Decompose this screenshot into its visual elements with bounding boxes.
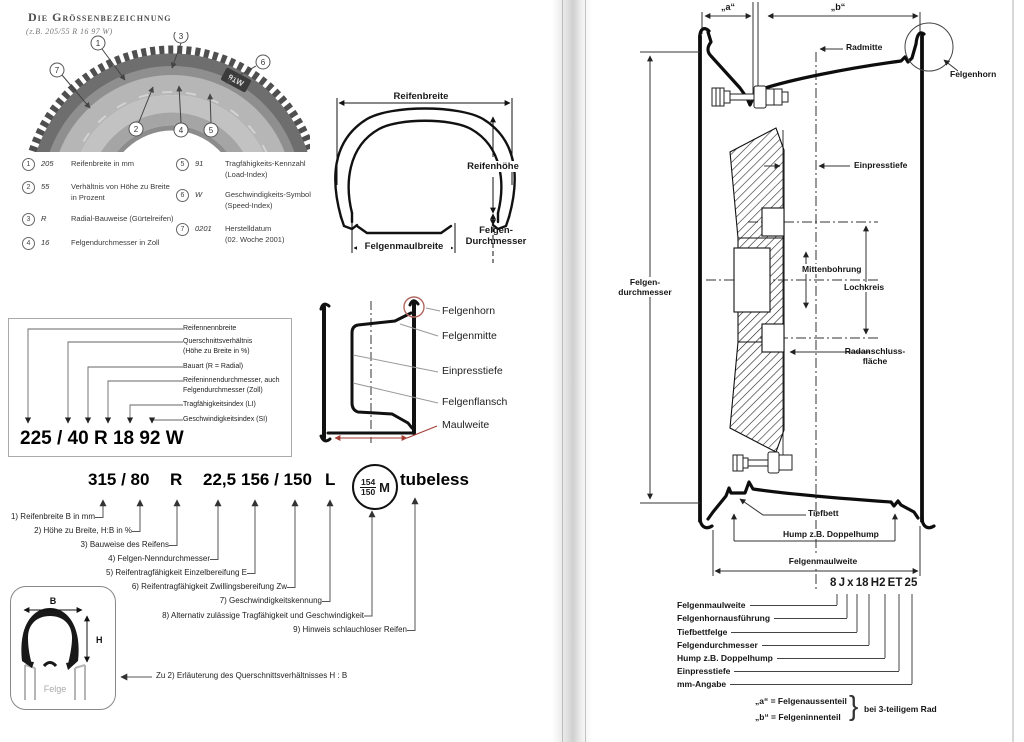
designation-label-4b: Felgendurchmesser (Zoll) (183, 386, 263, 396)
right-page: „a“ „b“ Radmitte Felgenhorn Einpresstief… (588, 0, 1024, 742)
truck-note-2: 2) Höhe zu Breite, H:B in % (0, 526, 132, 535)
truck-note-3: 3) Bauweise des Reifens (0, 540, 169, 549)
label-felgenmaulbreite: Felgenmaulbreite (357, 241, 451, 252)
legend-value: R (35, 213, 63, 224)
callout-1: 1 (96, 39, 101, 48)
legend-value: W (189, 189, 217, 200)
legend-desc: Verhältnis von Höhe zu Breitein Prozent (63, 181, 170, 203)
rim-code-label-row: Felgenmaulweite (677, 600, 837, 610)
page-title: Die Grössenbezeichnung (28, 10, 171, 25)
leader-line (750, 605, 838, 606)
designation-label-1: Reifennennbreite (183, 324, 236, 334)
label-felgenhorn-right: Felgenhorn (950, 69, 996, 79)
legend-num: 5 (176, 158, 189, 171)
footnote-3-part-wheel: bei 3-teiligem Rad (864, 704, 937, 714)
dimension-lines (640, 16, 958, 576)
rim-code: 8 J x 18 H2 ET 25 (830, 577, 917, 589)
designation-label-2a: Querschnittsverhältnis (183, 337, 252, 347)
book-spread: Die Grössenbezeichnung (z.B. 205/55 R 16… (0, 0, 1024, 742)
label-hump: Hump z.B. Doppelhump (781, 529, 881, 539)
label-felgenmitte: Felgenmitte (442, 330, 497, 342)
legend-item-7: 7 0201 Herstelldatum(02. Woche 2001) (176, 223, 284, 245)
legend-value: 0201 (189, 223, 217, 234)
leader-line (777, 658, 885, 659)
legend-num: 4 (22, 237, 35, 250)
callout-4: 4 (179, 126, 184, 135)
dim-b-label: „b“ (826, 2, 850, 12)
label-felgendurchmesser: Felgen-Durchmesser (455, 225, 537, 247)
label-einpresstiefe: Einpresstiefe (442, 365, 503, 377)
legend-desc: Herstelldatum(02. Woche 2001) (217, 223, 284, 245)
legend-num: 2 (22, 181, 35, 194)
hb-diagram: B H Felge (10, 586, 114, 708)
footnote-a: „a“ = Felgenaussenteil (755, 696, 847, 706)
rim-code-label-row: Felgendurchmesser (677, 640, 869, 650)
legend-num: 3 (22, 213, 35, 226)
label-radmitte: Radmitte (846, 42, 882, 52)
legend-desc: Tragfähigkeits-Kennzahl(Load-Index) (217, 158, 306, 180)
label-lochkreis: Lochkreis (842, 282, 886, 292)
leader-line (774, 618, 847, 619)
wheel-disc (730, 128, 784, 452)
label-felgendurchmesser-right: Felgen-durchmesser (608, 277, 682, 297)
rim-code-label-row: Einpresstiefe (677, 666, 899, 676)
truck-note-1: 1) Reifenbreite B in mm (0, 512, 95, 521)
dim-a-label: „a“ (716, 2, 740, 12)
rim-code-label-row: mm-Angabe (677, 679, 912, 689)
legend-item-6: 6 W Geschwindigkeits-Symbol(Speed-Index) (176, 189, 311, 211)
callout-6: 6 (261, 58, 266, 67)
legend-value: 16 (35, 237, 63, 248)
truck-note-5: 5) Reifentragfähigkeit Einzelbereifung E (0, 568, 247, 577)
legend-value: 91 (189, 158, 217, 169)
label-reifenhoehe: Reifenhöhe (465, 161, 521, 172)
legend-num: 6 (176, 189, 189, 202)
truck-note-4: 4) Felgen-Nenndurchmesser (0, 554, 210, 563)
designation-label-4a: Reifeninnendurchmesser, auch (183, 376, 280, 386)
rim-code-label-row: Tiefbettfelge (677, 627, 857, 637)
legend-item-2: 2 55 Verhältnis von Höhe zu Breitein Pro… (22, 181, 170, 203)
rim-outline (321, 301, 418, 441)
label-felge: Felge (44, 684, 67, 694)
designation-label-2b: (Höhe zu Breite in %) (183, 347, 250, 357)
legend-desc: Reifenbreite in mm (63, 158, 134, 169)
label-mittenbohrung: Mittenbohrung (800, 264, 863, 274)
felge-rim-lines (25, 665, 85, 700)
leader-line (730, 684, 912, 685)
zu2-footnote: Zu 2) Erläuterung des Querschnittsverhäl… (156, 671, 347, 680)
legend-item-4: 4 16 Felgendurchmesser in Zoll (22, 237, 159, 250)
designation-label-5: Tragfähigkeitsindex (LI) (183, 400, 256, 410)
callout-7: 7 (55, 66, 60, 75)
legend-num: 1 (22, 158, 35, 171)
legend-desc: Radial-Bauweise (Gürtelreifen) (63, 213, 174, 224)
label-maulweite: Maulweite (442, 419, 489, 431)
tire-shell (21, 608, 78, 664)
legend-value: 205 (35, 158, 63, 169)
label-radanschlussflaeche: Radanschluss-fläche (842, 346, 908, 366)
tire-code: 225 / 40 R 18 92 W (20, 428, 184, 450)
callout-2: 2 (134, 125, 139, 134)
legend-item-5: 5 91 Tragfähigkeits-Kennzahl(Load-Index) (176, 158, 306, 180)
leader-line (734, 671, 899, 672)
legend-num: 7 (176, 223, 189, 236)
rim-code-label-row: Felgenhornausführung (677, 613, 847, 623)
wheel-bolt-bottom (733, 452, 792, 473)
rim-leader-lines (353, 308, 440, 403)
left-page: Die Grössenbezeichnung (z.B. 205/55 R 16… (0, 0, 556, 742)
leader-line (731, 632, 857, 633)
label-felgenhorn: Felgenhorn (442, 305, 495, 317)
gutter-line-right (585, 0, 586, 742)
legend-desc: Felgendurchmesser in Zoll (63, 237, 159, 248)
gutter-line-left (562, 0, 563, 742)
footnote-b: „b“ = Felgeninnenteil (755, 712, 841, 722)
rim-code-label-row: Hump z.B. Doppelhump (677, 653, 885, 663)
legend-item-3: 3 R Radial-Bauweise (Gürtelreifen) (22, 213, 174, 226)
designation-label-6: Geschwindigkeitsindex (SI) (183, 415, 267, 425)
legend-desc: Geschwindigkeits-Symbol(Speed-Index) (217, 189, 311, 211)
label-h: H (96, 635, 103, 645)
legend-value: 55 (35, 181, 63, 192)
label-felgenflansch: Felgenflansch (442, 396, 507, 408)
label-reifenbreite: Reifenbreite (371, 91, 471, 102)
footnote-brace: } (849, 690, 858, 722)
callout-3: 3 (179, 32, 184, 41)
leader-line (762, 645, 869, 646)
label-tiefbett: Tiefbett (808, 508, 839, 518)
callout-5: 5 (209, 126, 214, 135)
tire-dimple (44, 663, 56, 667)
label-felgenmaulweite-dim: Felgenmaulweite (786, 556, 860, 566)
label-einpresstiefe-right: Einpresstiefe (854, 160, 907, 170)
book-gutter (552, 0, 592, 742)
legend-item-1: 1 205 Reifenbreite in mm (22, 158, 134, 171)
tire-photo: 91W 1 2 3 4 5 6 7 (20, 32, 310, 152)
designation-label-3: Bauart (R = Radial) (183, 362, 243, 372)
label-b: B (50, 596, 57, 606)
